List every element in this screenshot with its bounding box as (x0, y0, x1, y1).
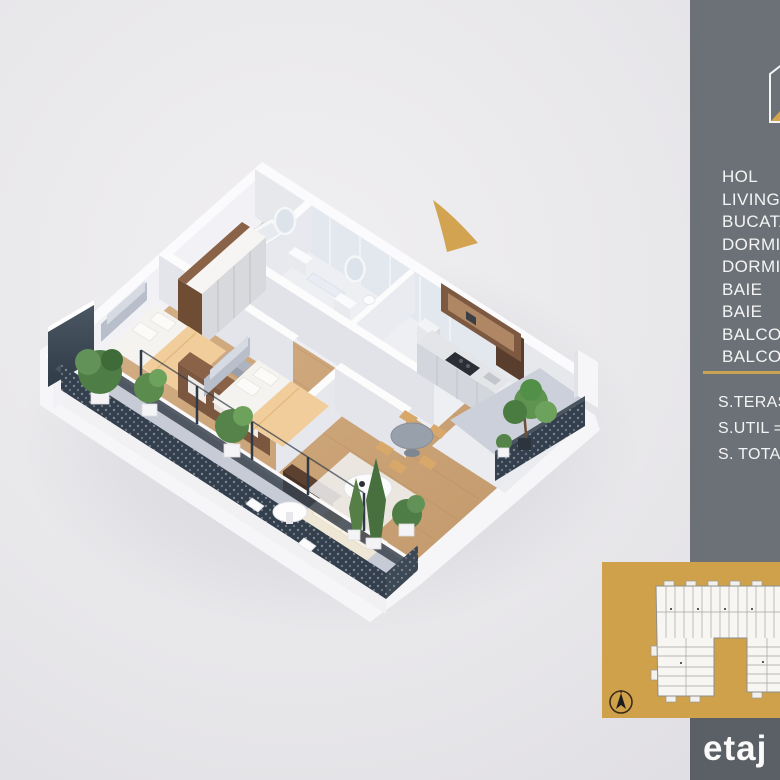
north-compass-icon (610, 690, 632, 713)
brand-logo (766, 52, 780, 130)
room-label: HOL (722, 166, 780, 189)
gold-divider (703, 371, 780, 374)
oval-mirror-icon (275, 208, 295, 234)
building-footprint-map (602, 562, 780, 718)
area-label: S.TERASA = (718, 390, 780, 416)
gold-direction-arrow-icon (433, 200, 478, 252)
house-gold-roof-icon (771, 98, 780, 121)
round-dining-table (391, 423, 433, 449)
room-label: DORMITOR (722, 234, 780, 257)
house-outline-icon (770, 57, 780, 122)
room-label: BALCON (722, 346, 780, 369)
room-label: BAIE (722, 279, 780, 302)
area-label: S. TOTALA = (718, 442, 780, 468)
room-label: DORMITOR (722, 256, 780, 279)
building-outline (656, 586, 780, 696)
oval-mirror-icon (346, 257, 365, 282)
apartment-floorplan-render (0, 0, 690, 780)
floor-label: etaj (690, 729, 767, 769)
room-label: BAIE (722, 301, 780, 324)
building-locator-box (602, 562, 780, 718)
room-label: LIVING (722, 189, 780, 212)
floor-indicator-strip: etaj (690, 718, 780, 780)
area-label: S.UTIL = (718, 416, 780, 442)
room-label: BUCATARIE (722, 211, 780, 234)
canvas-background: HOL LIVING BUCATARIE DORMITOR DORMITOR B… (0, 0, 780, 780)
room-label: BALCON (722, 324, 780, 347)
room-list: HOL LIVING BUCATARIE DORMITOR DORMITOR B… (722, 166, 780, 369)
area-list: S.TERASA = S.UTIL = S. TOTALA = (718, 390, 780, 468)
